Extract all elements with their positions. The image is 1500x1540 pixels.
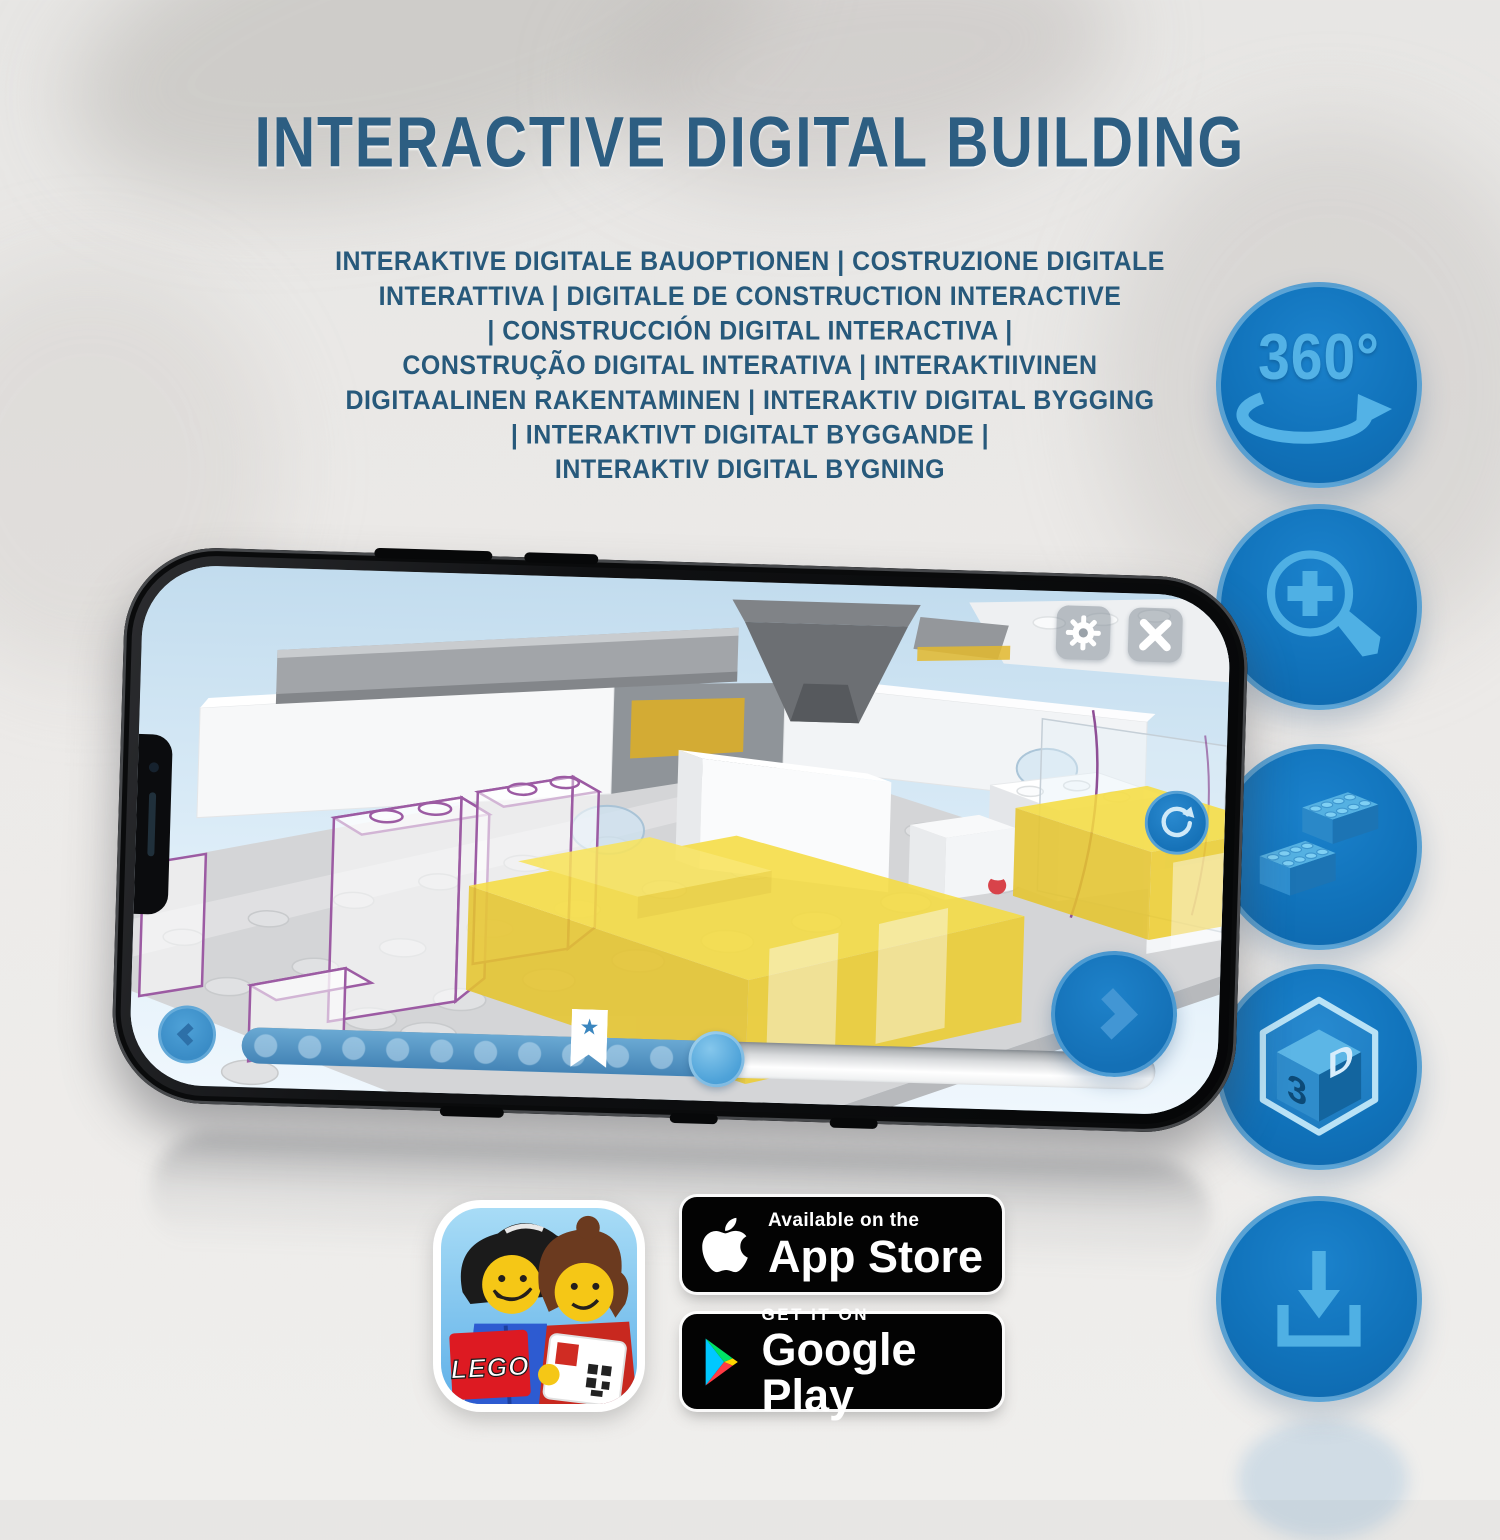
phone-mockup: ★ [110, 545, 1250, 1134]
phone-speaker-slot [830, 1118, 878, 1129]
zoom-in-icon [1244, 532, 1394, 682]
google-play-icon [682, 1336, 762, 1388]
rotate-icon [1155, 801, 1198, 844]
chevron-right-icon [1083, 983, 1145, 1045]
google-play-tagline: GET IT ON [762, 1305, 1002, 1325]
phone-speaker-slot [440, 1106, 504, 1118]
feature-360-rotation: 360° [1216, 282, 1422, 488]
lego-minifigures-art: LEGO [441, 1208, 637, 1404]
page-title: INTERACTIVE DIGITAL BUILDING [0, 104, 1500, 181]
google-play-badge[interactable]: GET IT ON Google Play [682, 1314, 1002, 1409]
svg-text:LEGO: LEGO [450, 1351, 530, 1385]
phone-earpiece [147, 792, 156, 856]
phone-side-button [374, 548, 492, 561]
close-button[interactable] [1128, 607, 1184, 663]
close-icon [1136, 615, 1175, 654]
circle-reflection [1238, 1420, 1408, 1540]
feature-brick [1216, 744, 1422, 950]
gear-icon [1063, 612, 1104, 653]
subtitle-line: | INTERAKTIVT DIGITALT BYGGANDE | [241, 417, 1259, 452]
app-store-badge[interactable]: Available on the App Store [682, 1197, 1002, 1292]
subtitle-line: INTERAKTIVE DIGITALE BAUOPTIONEN | COSTR… [241, 244, 1259, 279]
app-store-tagline: Available on the [768, 1210, 983, 1232]
phone-reflection [148, 1130, 1213, 1281]
subtitle-line: | CONSTRUCCIÓN DIGITAL INTERACTIVA | [241, 313, 1259, 348]
download-icon [1244, 1224, 1394, 1374]
settings-button[interactable] [1056, 605, 1112, 661]
phone-front-camera [149, 762, 159, 772]
subtitle-line: DIGITAALINEN RAKENTAMINEN | INTERAKTIV D… [241, 382, 1259, 417]
feature-3d-view: 3 D [1216, 964, 1422, 1170]
chevron-left-icon [172, 1019, 203, 1050]
subtitle-line: CONSTRUÇÃO DIGITAL INTERATIVA | INTERAKT… [241, 348, 1259, 383]
subtitle-line: INTERAKTIV DIGITAL BYGNING [241, 452, 1259, 487]
lego-app-icon[interactable]: LEGO [433, 1200, 645, 1412]
phone-speaker-slot [670, 1113, 718, 1124]
feature-360-label: 360° [1241, 320, 1397, 395]
google-play-label: Google Play [762, 1327, 1002, 1419]
brick-icon [1243, 771, 1395, 923]
subtitle-line: INTERATTIVA | DIGITALE DE CONSTRUCTION I… [241, 278, 1259, 313]
lego-marketing-page: { "header": { "title": "INTERACTIVE DIGI… [0, 0, 1500, 1500]
phone-screen: ★ [129, 564, 1232, 1116]
feature-download [1216, 1196, 1422, 1402]
phone-notch [132, 734, 173, 915]
multilanguage-subtitle: INTERAKTIVE DIGITALE BAUOPTIONEN | COSTR… [241, 244, 1259, 487]
phone-side-button [524, 552, 598, 564]
app-store-label: App Store [768, 1234, 983, 1280]
apple-icon [682, 1214, 768, 1276]
3d-cube-icon: 3 D [1241, 989, 1397, 1145]
